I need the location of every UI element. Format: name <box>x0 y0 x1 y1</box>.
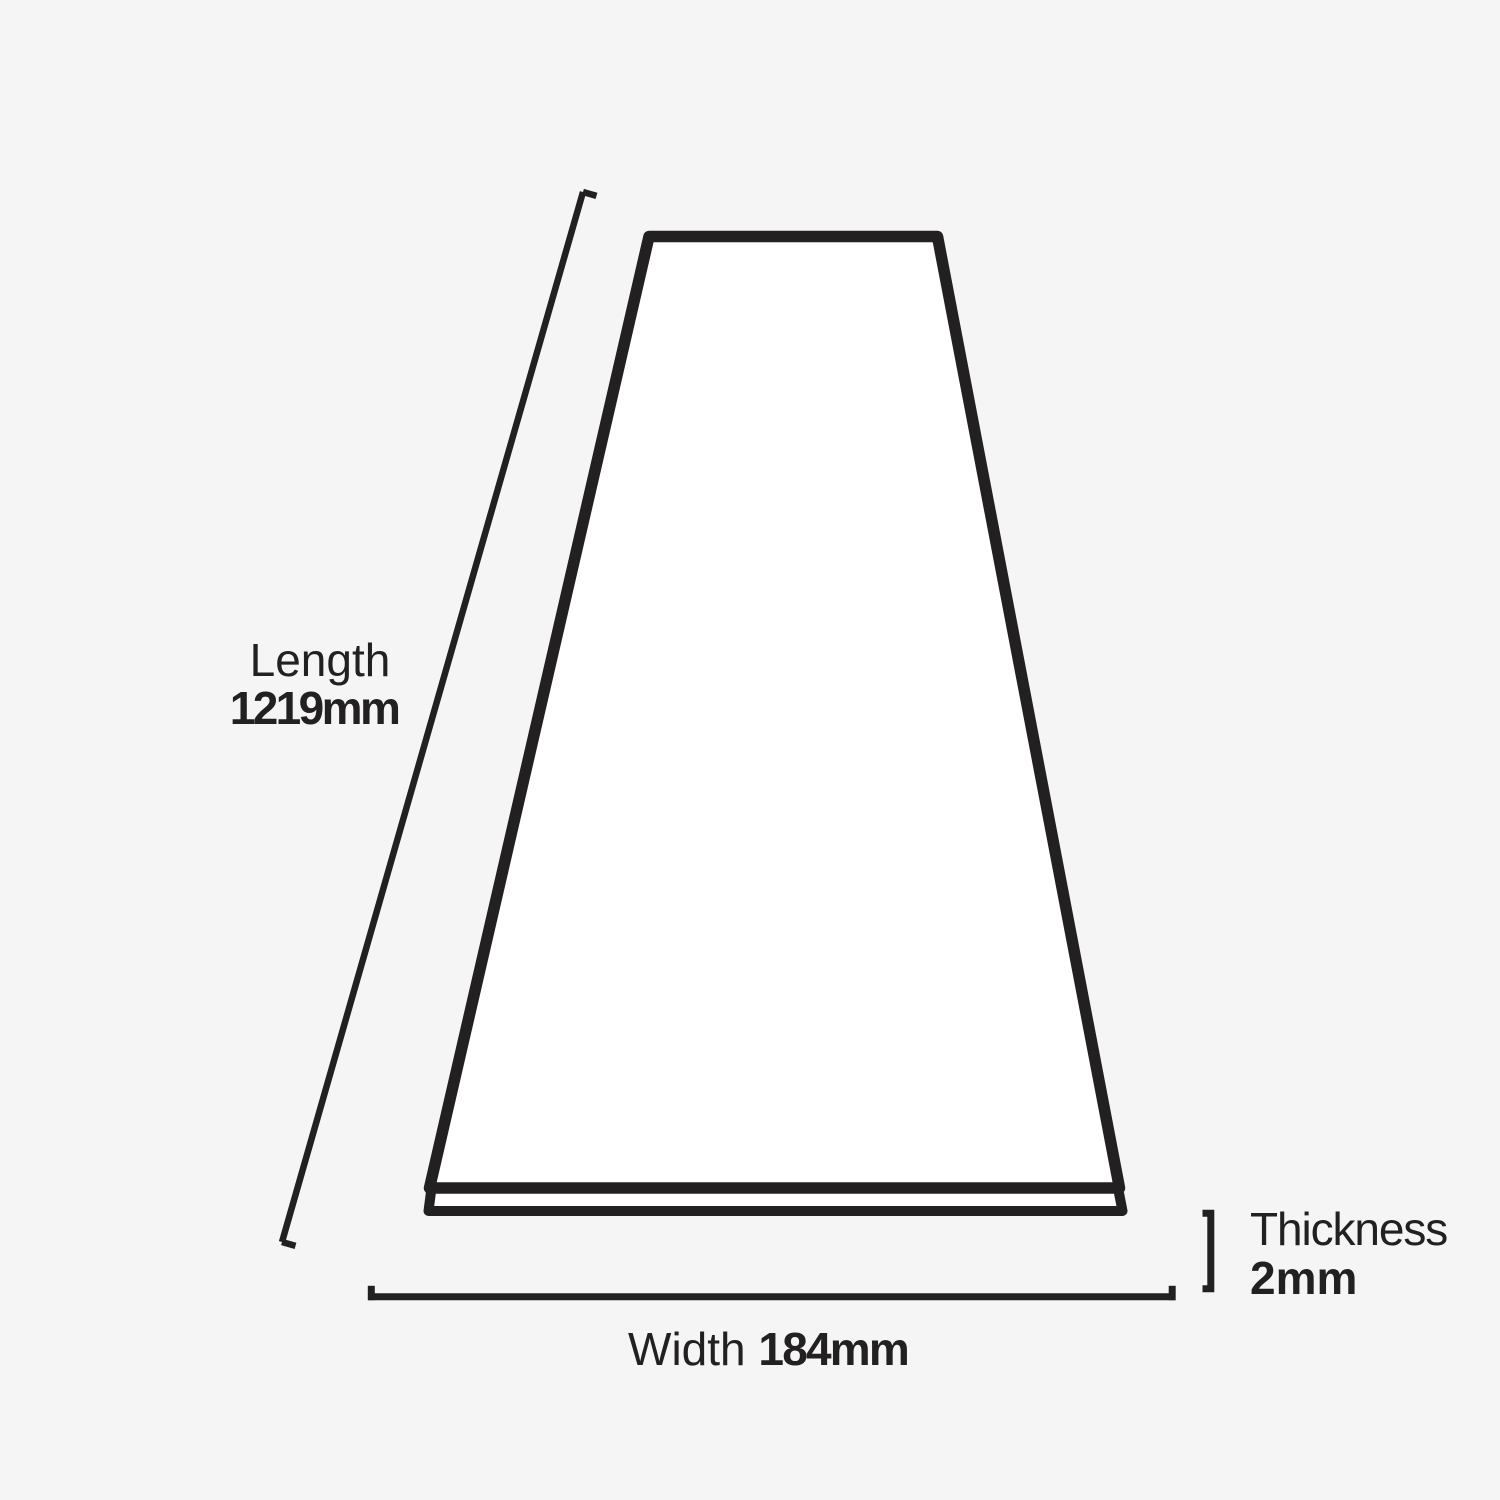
svg-text:2mm: 2mm <box>1250 1252 1357 1304</box>
svg-text:Width 184mm: Width 184mm <box>628 1323 908 1375</box>
svg-text:Length: Length <box>250 634 391 686</box>
svg-text:Thickness: Thickness <box>1250 1203 1447 1255</box>
svg-text:1219mm: 1219mm <box>230 682 399 734</box>
